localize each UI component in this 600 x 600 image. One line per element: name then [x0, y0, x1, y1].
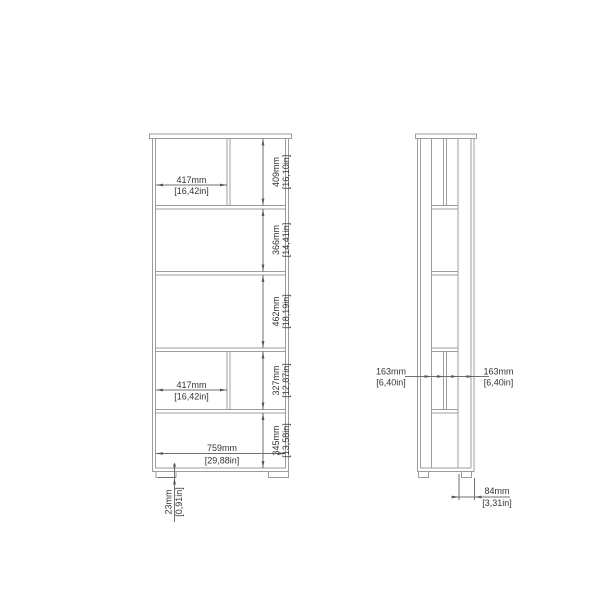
arrow	[262, 403, 265, 410]
arrow	[262, 352, 265, 359]
side-body-outline	[418, 139, 475, 472]
arrow	[467, 375, 474, 378]
technical-drawing-page: 417mm [16,42in] 417mm [16,42in] 759mm [2…	[0, 0, 600, 600]
height-3-mm-label: 462mm	[271, 296, 281, 326]
height-3-inch-label: [18,19in]	[281, 294, 291, 329]
side-back-foot	[419, 472, 429, 478]
arrow	[262, 209, 265, 216]
foot-height-inch-label: [0,91in]	[174, 487, 184, 517]
arrow	[156, 184, 163, 187]
top-width-inch-label: [16,42in]	[174, 186, 209, 196]
front-left-foot	[156, 472, 176, 478]
arrow	[425, 375, 432, 378]
arrow	[262, 199, 265, 206]
arrow	[156, 452, 163, 455]
base-depth-inch-label: [3,31in]	[482, 498, 512, 508]
arrow	[437, 375, 444, 378]
height-4-mm-label: 327mm	[271, 365, 281, 395]
base-depth-mm-label: 84mm	[484, 486, 509, 496]
arrow	[262, 265, 265, 272]
arrow	[220, 389, 227, 392]
arrow	[220, 184, 227, 187]
height-4-inch-label: [12,87in]	[281, 363, 291, 398]
lower-width-inch-label: [16,42in]	[174, 392, 209, 402]
side-front-foot	[462, 472, 472, 478]
front-right-foot	[269, 472, 289, 478]
bookcase-dimension-drawing: 417mm [16,42in] 417mm [16,42in] 759mm [2…	[0, 0, 600, 600]
arrow	[262, 413, 265, 420]
side-view-labels: 163mm [6,40in] 163mm [6,40in] 84mm [3,31…	[376, 367, 514, 509]
arrow	[156, 389, 163, 392]
arrow	[173, 478, 176, 485]
height-2-mm-label: 366mm	[271, 225, 281, 255]
arrow	[475, 496, 482, 499]
height-5-mm-label: 345mm	[271, 425, 281, 455]
arrow	[451, 375, 458, 378]
arrow	[452, 496, 459, 499]
height-5-inch-label: [13,58in]	[281, 423, 291, 458]
interior-width-inch-label: [29,88in]	[205, 456, 240, 466]
arrow	[262, 461, 265, 468]
foot-height-mm-label: 23mm	[164, 489, 174, 514]
arrow	[262, 341, 265, 348]
side-view-drawing	[416, 134, 477, 478]
height-1-mm-label: 409mm	[271, 157, 281, 187]
top-width-mm-label: 417mm	[176, 175, 206, 185]
depth-right-inch-label: [6,40in]	[484, 378, 514, 388]
front-top-panel	[150, 134, 292, 139]
arrow	[262, 139, 265, 146]
interior-width-mm-label: 759mm	[207, 443, 237, 453]
arrow	[262, 275, 265, 282]
side-top-panel	[416, 134, 477, 139]
lower-width-mm-label: 417mm	[176, 380, 206, 390]
front-body-outline	[153, 139, 289, 472]
depth-left-inch-label: [6,40in]	[376, 378, 406, 388]
height-1-inch-label: [16,10in]	[281, 155, 291, 190]
depth-left-mm-label: 163mm	[376, 367, 406, 377]
height-2-inch-label: [14,41in]	[281, 223, 291, 258]
depth-right-mm-label: 163mm	[483, 367, 513, 377]
